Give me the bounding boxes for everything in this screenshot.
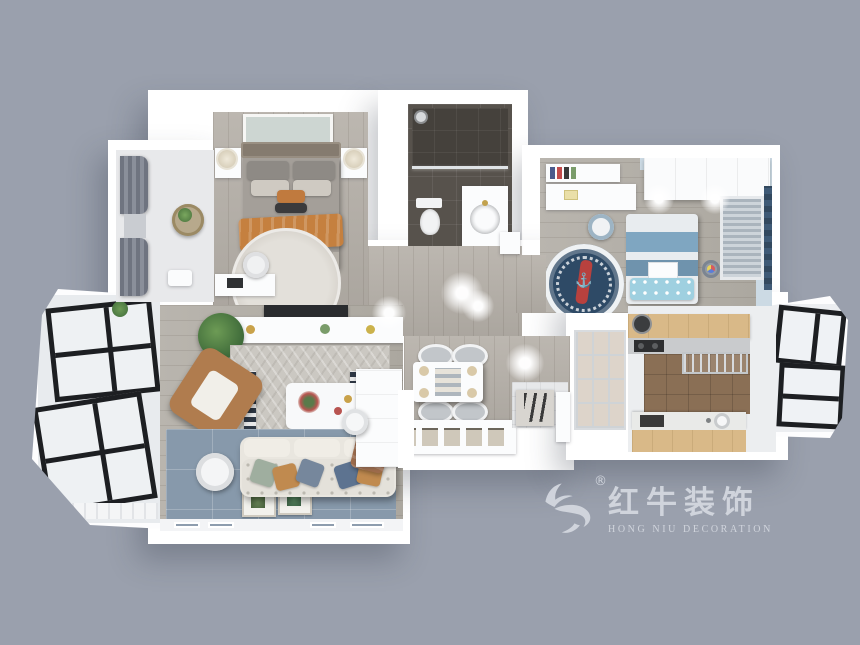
master-bedroom	[213, 112, 368, 308]
sheer-curtain	[124, 214, 146, 238]
window-frame	[776, 362, 845, 429]
balcony-curtain	[120, 156, 148, 214]
counter-appliance	[640, 415, 664, 427]
kitchen-sink	[714, 413, 730, 429]
burner	[638, 343, 644, 349]
desk-chair	[243, 252, 269, 278]
ceiling-light-glow	[644, 184, 674, 214]
registered-mark: ®	[594, 474, 607, 489]
book	[564, 167, 569, 179]
baseboard-inlay	[174, 522, 200, 528]
side-table	[196, 453, 234, 491]
window-mullion	[45, 443, 145, 464]
dining-table	[413, 362, 483, 402]
book	[557, 167, 562, 179]
table-lamp	[218, 150, 236, 168]
window-mullion	[810, 313, 820, 361]
console-decor	[246, 325, 255, 334]
tv	[264, 305, 348, 317]
kids-curtain	[764, 186, 772, 290]
balcony-stool	[168, 270, 192, 286]
laptop	[227, 278, 243, 288]
toy-ball	[707, 265, 715, 273]
window-frame	[773, 305, 847, 370]
shower-area	[412, 108, 508, 166]
burner	[652, 343, 658, 349]
drying-rack	[682, 352, 748, 374]
kids-bedroom: ⚓	[540, 158, 772, 313]
armchair-pillow	[189, 368, 240, 422]
desk	[215, 274, 275, 296]
lower-cabinets	[632, 430, 746, 452]
living-room	[160, 305, 403, 531]
book	[550, 167, 555, 179]
master-balcony	[116, 150, 214, 302]
brand-text-block: 红牛装饰 HONG NIU DECORATION	[608, 486, 773, 535]
kids-pillow	[630, 278, 694, 300]
bed-pillow	[247, 161, 289, 180]
bathroom	[408, 104, 512, 252]
window-mullion	[783, 393, 839, 401]
kids-desk	[546, 184, 636, 210]
brand-name-cn: 红牛装饰	[608, 486, 773, 522]
range-hood	[634, 316, 650, 332]
place-setting	[467, 366, 477, 376]
place-setting	[419, 366, 429, 376]
floor-vase	[342, 409, 368, 435]
sideboard-tray	[444, 428, 460, 446]
balcony-floor-slats	[62, 503, 158, 519]
baseboard-inlay	[310, 522, 336, 528]
sideboard-tray	[466, 428, 482, 446]
potted-plant	[178, 208, 192, 222]
window-frame	[45, 298, 160, 403]
bull-icon	[540, 478, 598, 536]
baseboard-inlay	[350, 522, 384, 528]
faucet	[706, 418, 711, 423]
kitchen	[628, 306, 776, 452]
baseboard-deco	[160, 519, 403, 531]
window-frame	[32, 391, 158, 515]
floor-plan-scene: ⚓	[0, 0, 860, 645]
toilet	[420, 209, 440, 235]
half-wall	[398, 390, 414, 468]
bed-lumbar-pillow	[275, 203, 307, 213]
table-runner	[435, 368, 461, 396]
kids-blanket-band	[626, 232, 698, 252]
window-mullion	[55, 343, 151, 358]
place-setting	[467, 388, 477, 398]
ceiling-light-glow	[462, 290, 494, 322]
sink	[470, 204, 500, 234]
ceiling-light-glow	[506, 344, 544, 382]
teacup	[334, 407, 342, 415]
window-blinds	[720, 196, 764, 280]
kitchen-balcony	[766, 296, 848, 440]
brand-logo: ®	[540, 478, 602, 540]
console-decor	[320, 324, 330, 334]
brand-name-en: HONG NIU DECORATION	[608, 524, 773, 535]
shower-head	[416, 112, 426, 122]
sofa-back-cushion	[244, 439, 290, 457]
sink-counter	[632, 412, 746, 430]
sideboard-tray	[488, 428, 504, 446]
ceiling-light-glow	[372, 296, 406, 330]
baseboard-inlay	[208, 522, 234, 528]
sofa-back-cushion	[294, 439, 340, 457]
laundry-basket	[702, 260, 720, 278]
hallway-to-kids	[516, 255, 546, 313]
faucet	[482, 200, 488, 206]
console-decor	[366, 325, 375, 334]
sideboard-tray	[422, 428, 438, 446]
shoe-cabinet	[556, 392, 570, 442]
kids-rug: ⚓	[544, 244, 624, 313]
ceiling-light-glow	[700, 184, 730, 214]
glass-partition	[574, 330, 626, 430]
headboard	[241, 142, 341, 158]
bed-pillow	[293, 161, 335, 180]
balcony-curtain	[120, 238, 148, 296]
toilet-tank	[416, 198, 442, 208]
flower-centerpiece	[298, 391, 320, 413]
teacup	[344, 395, 352, 403]
watermark: ® 红牛装饰 HONG NIU DECORATION	[540, 478, 773, 540]
table-lamp	[345, 150, 363, 168]
botanical-print	[251, 496, 265, 508]
book	[571, 167, 576, 179]
washer-appliance	[500, 232, 520, 254]
living-balcony	[28, 283, 166, 531]
entry-artwork	[516, 390, 554, 426]
desk-item	[564, 190, 578, 200]
kids-bed	[626, 214, 698, 304]
kids-chair	[588, 214, 614, 240]
bed-pillow	[277, 190, 305, 203]
shower-glass-partition	[412, 166, 508, 169]
anchor-icon: ⚓	[544, 272, 624, 289]
place-setting	[419, 388, 429, 398]
balcony-plant	[112, 301, 128, 317]
